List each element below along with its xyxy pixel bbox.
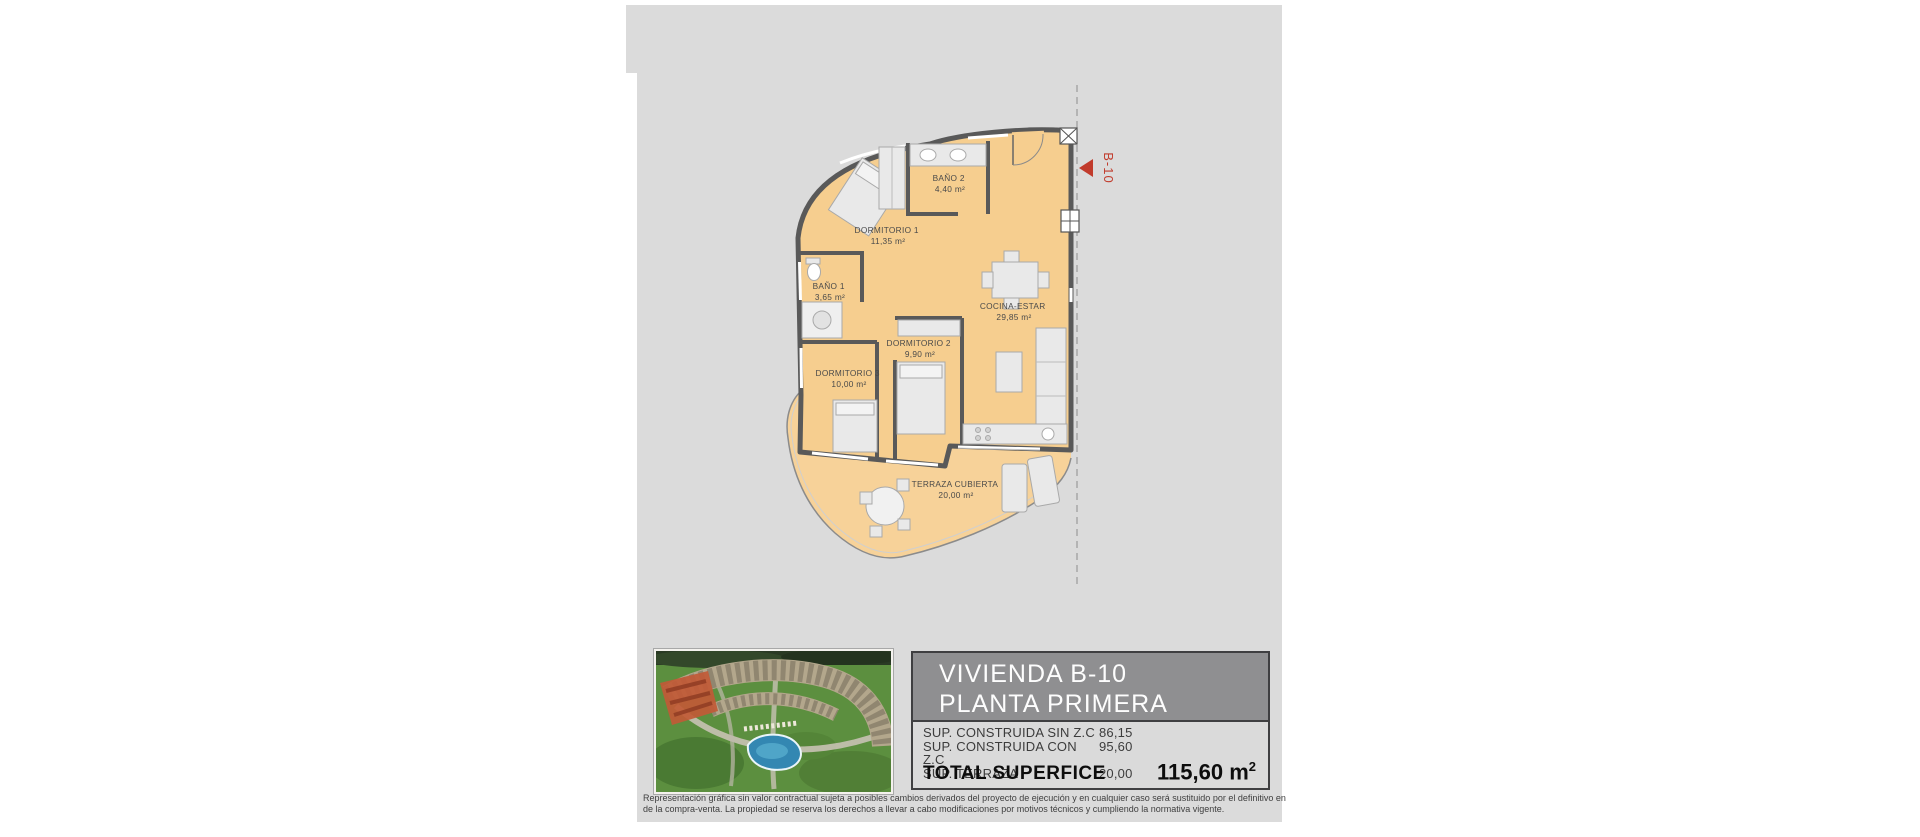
- disclaimer-line1: Representación gráfica sin valor contrac…: [643, 793, 1282, 804]
- sun-lounger: [1002, 464, 1027, 512]
- room-label-bano1: BAÑO 1 3,65 m²: [813, 281, 848, 302]
- title-block-header: VIVIENDA B-10 PLANTA PRIMERA: [911, 651, 1270, 722]
- surface-label: SUP. CONSTRUIDA SIN Z.C: [923, 726, 1099, 740]
- unit-marker-label: B-10: [1101, 152, 1116, 183]
- floor-plan: B-10 DORMITORIO 1 11,35 m² BAÑO 2 4,40 m…: [770, 70, 1130, 600]
- total-surface-label: TOTAL SUPERFICE: [923, 763, 1106, 785]
- surface-value: 86,15: [1099, 726, 1133, 740]
- floor-title: PLANTA PRIMERA: [939, 690, 1268, 719]
- unit-marker-arrow-icon: [1079, 159, 1093, 177]
- disclaimer-line2: de la compra-venta. La propiedad se rese…: [643, 804, 1282, 815]
- dining-table: [992, 262, 1038, 298]
- coffee-table: [996, 352, 1022, 392]
- wardrobe-dormitorio2: [898, 320, 960, 336]
- sofa: [1036, 328, 1066, 430]
- total-surface-value: 115,60 m2: [1157, 759, 1256, 785]
- legal-disclaimer: Representación gráfica sin valor contrac…: [643, 793, 1282, 814]
- room-label-bano2: BAÑO 2 4,40 m²: [933, 173, 968, 194]
- unit-title: VIVIENDA B-10: [939, 660, 1268, 689]
- site-aerial-photo: [654, 649, 893, 794]
- surface-table: SUP. CONSTRUIDA SIN Z.C 86,15 SUP. CONST…: [911, 722, 1270, 790]
- surface-row: SUP. CONSTRUIDA SIN Z.C 86,15: [923, 726, 1268, 740]
- total-surface-row: TOTAL SUPERFICE 115,60 m2: [923, 759, 1256, 785]
- document-page: B-10 DORMITORIO 1 11,35 m² BAÑO 2 4,40 m…: [0, 0, 1920, 837]
- unit-marker: B-10: [1079, 152, 1116, 183]
